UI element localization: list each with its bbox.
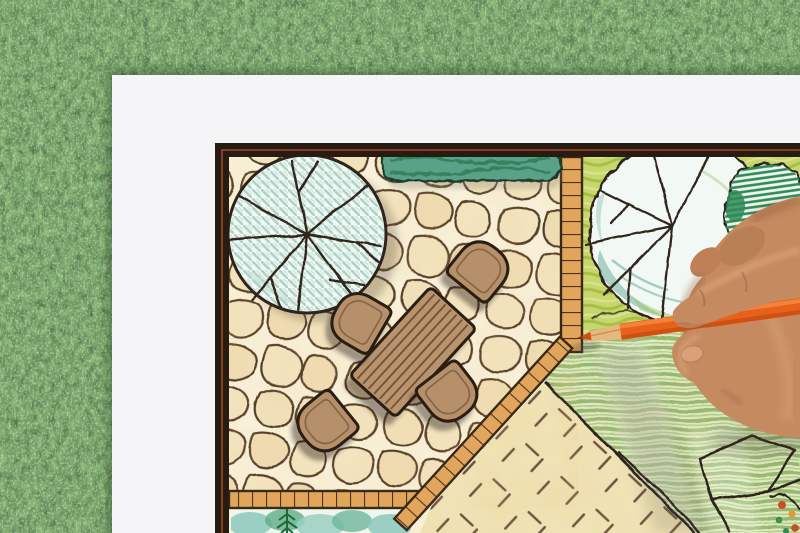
brick-edge-bottom	[229, 491, 427, 508]
photo-canvas	[0, 0, 800, 533]
brick-path-vertical	[561, 157, 582, 352]
